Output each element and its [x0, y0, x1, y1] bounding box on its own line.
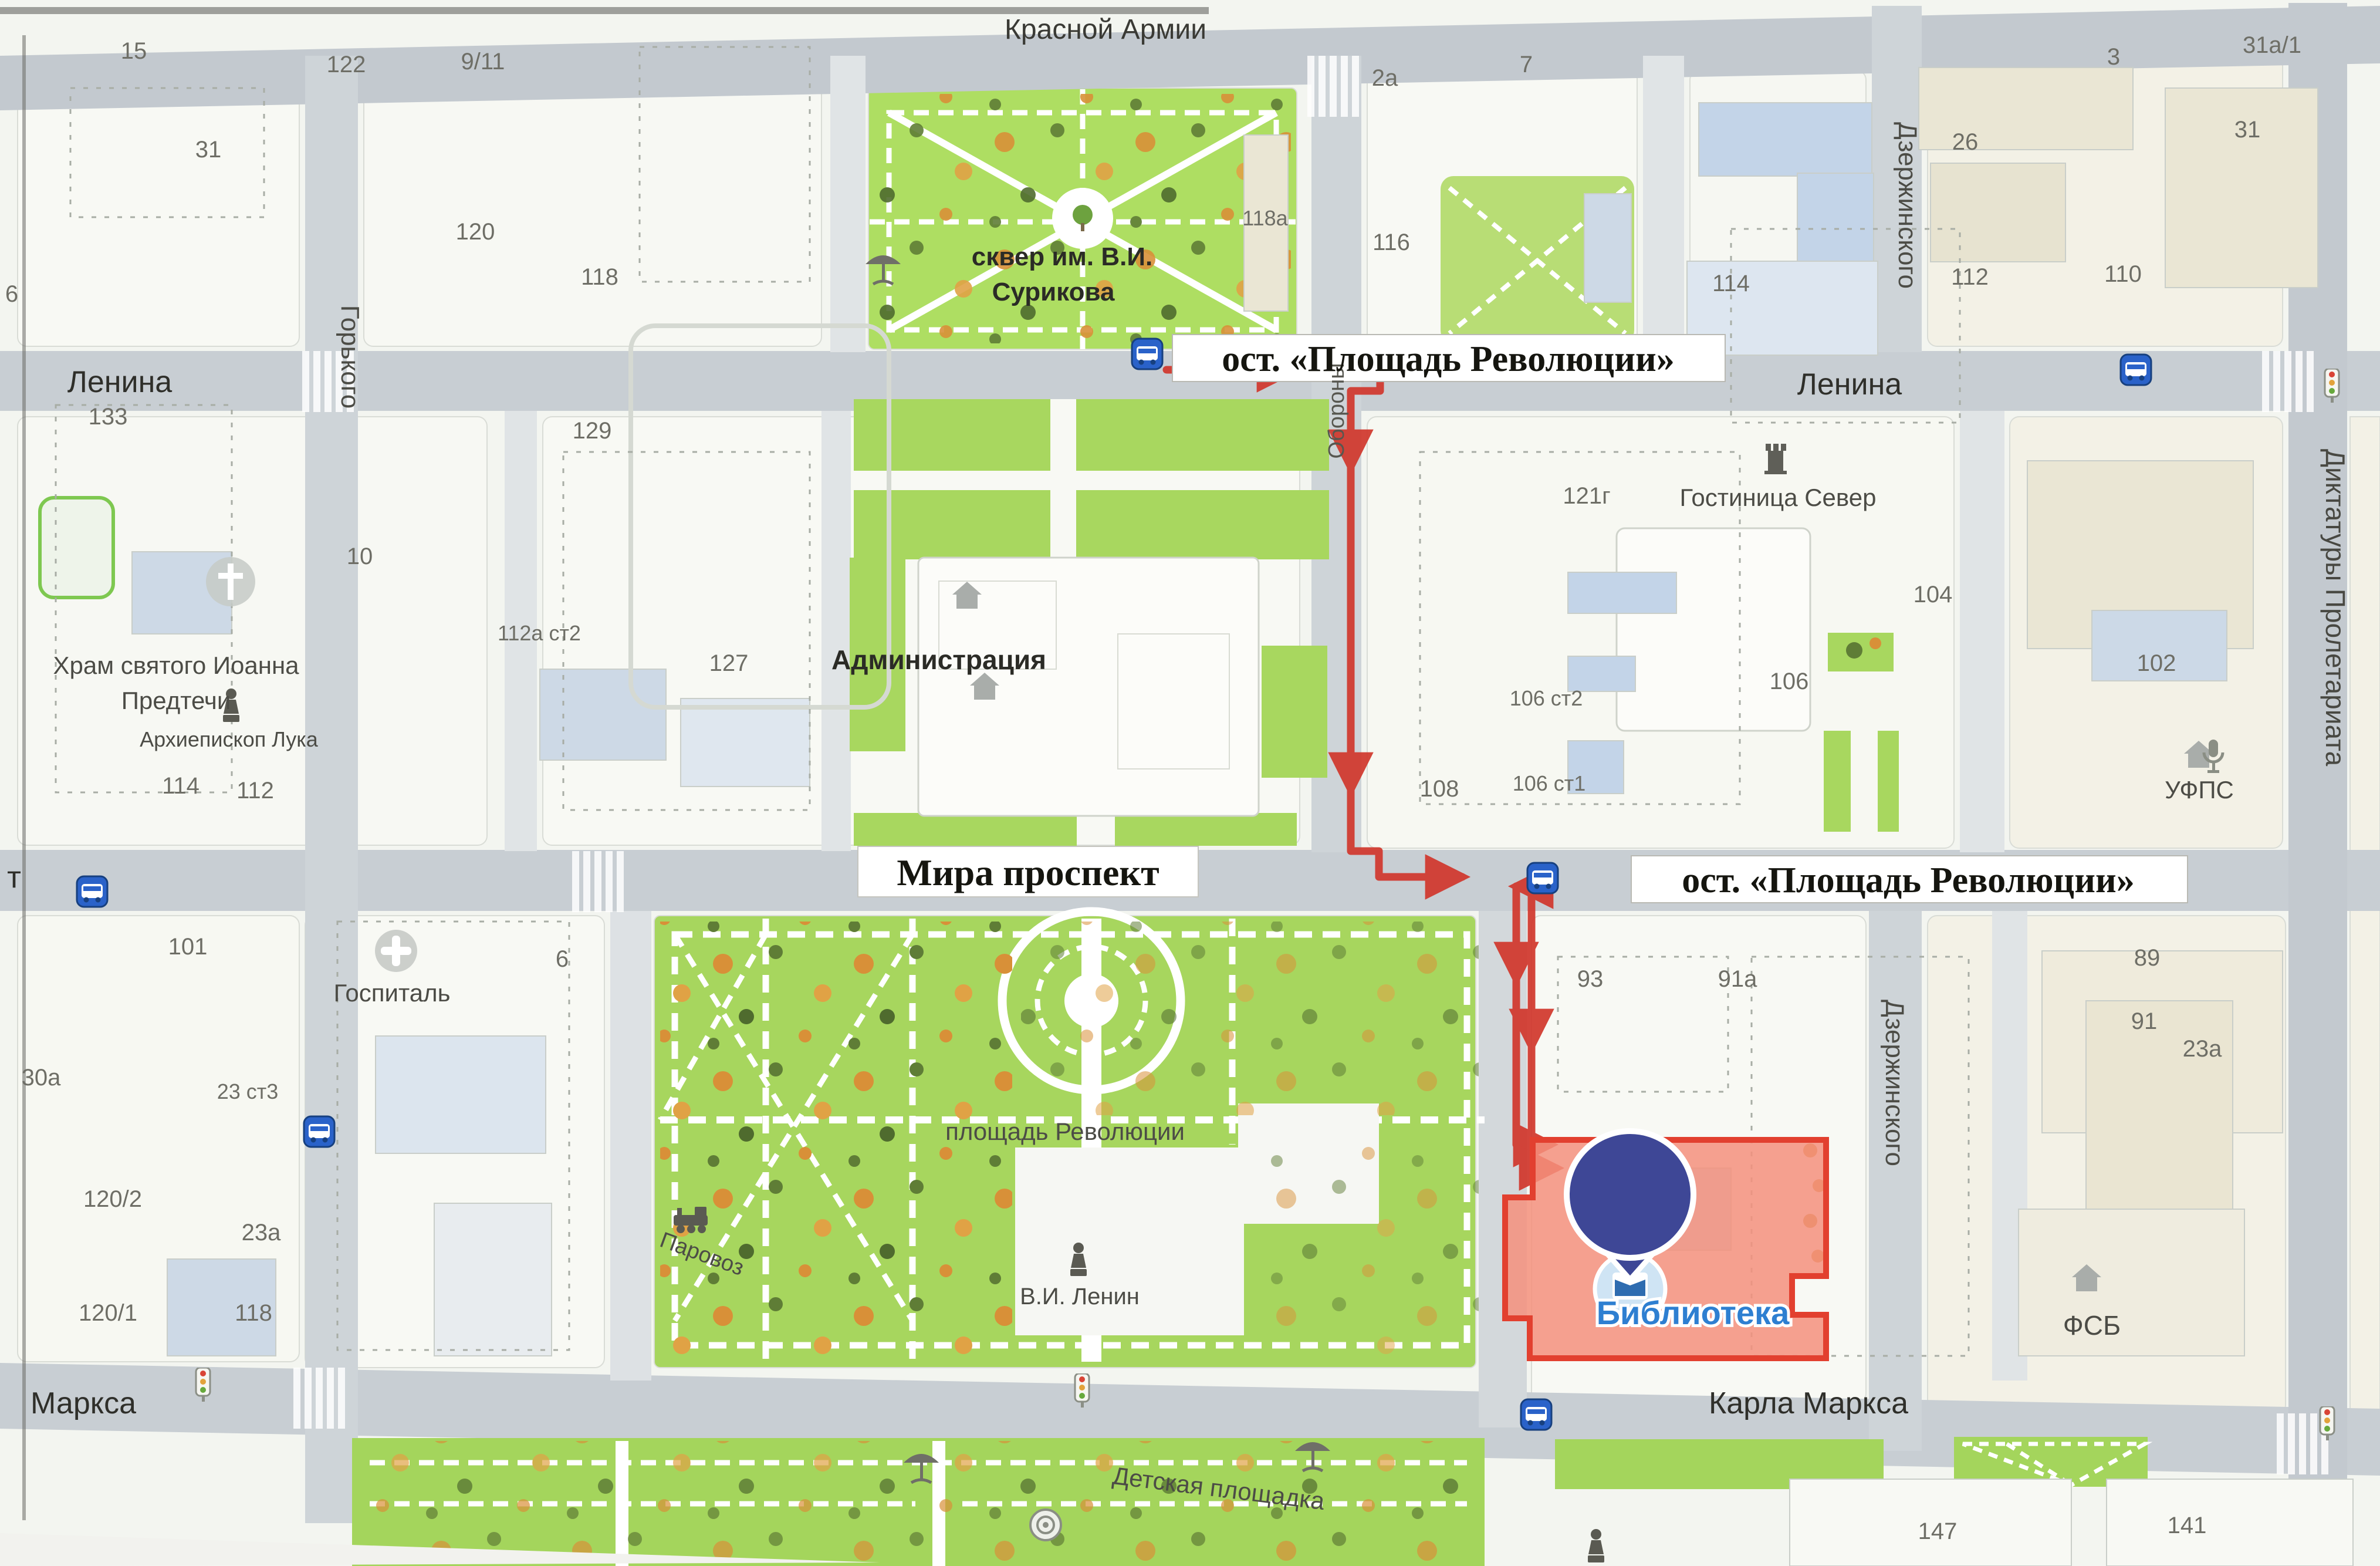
poi-luka: Архиепископ Лука — [140, 727, 319, 751]
house-number: 127 — [709, 650, 749, 676]
bus-stop-icon[interactable] — [1527, 863, 1558, 893]
tree-icon — [1064, 200, 1101, 237]
house-number: 108 — [1420, 776, 1459, 802]
hospital-cross-icon — [375, 930, 417, 972]
building — [1568, 572, 1676, 613]
house-number: 147 — [1918, 1518, 1958, 1544]
poi-skver-line2: Сурикова — [992, 278, 1115, 306]
house-number: 91а — [1718, 966, 1757, 992]
bus-stop-icon[interactable] — [304, 1116, 334, 1147]
hotel-building — [1617, 528, 1810, 731]
house-number: 106 ст1 — [1513, 771, 1586, 795]
house-number: 121г — [1563, 483, 1610, 509]
lawn-strip — [854, 490, 1329, 559]
lawn-strip — [1878, 731, 1899, 832]
lawn-strip — [1262, 646, 1327, 778]
poi-hospital: Госпиталь — [333, 979, 450, 1007]
house-number: 7 — [1520, 52, 1533, 77]
house-number: 2а — [1372, 65, 1398, 91]
house-number: 101 — [168, 934, 208, 960]
bus-stop-icon[interactable] — [77, 876, 107, 907]
street-label-marksa: Маркса — [31, 1386, 136, 1420]
street-label-diktatury: Диктатуры Пролетариата — [2320, 449, 2351, 767]
road-minor — [830, 56, 866, 352]
house-number: 141 — [2168, 1513, 2207, 1538]
bus-stop-icon[interactable] — [2121, 355, 2151, 385]
lawn-strip — [854, 399, 1329, 471]
house-number: 102 — [2137, 650, 2176, 676]
road-minor — [1960, 411, 2004, 852]
bus-stop-icon[interactable] — [1132, 339, 1162, 369]
building — [1931, 163, 2065, 262]
lawn-gap — [1050, 399, 1076, 559]
house-number: 118а — [1242, 206, 1288, 230]
house-number: 106 — [1770, 669, 1809, 694]
building — [2019, 1209, 2244, 1356]
poi-revolution-square: площадь Революции — [945, 1118, 1185, 1145]
building — [540, 669, 666, 760]
house-number: 118 — [235, 1300, 272, 1326]
poi-skver-line1: сквер им. В.И. — [972, 242, 1152, 271]
scanned-map-page: Красной Армии Ленина Ленина Горького Обо… — [0, 0, 2380, 1566]
house-number: 9/11 — [461, 49, 505, 75]
house-number: 23а — [242, 1220, 281, 1246]
road-minor — [821, 411, 851, 851]
street-label-cut: т — [7, 860, 21, 895]
house-number: 133 — [89, 404, 128, 430]
house-number: 23а — [2183, 1036, 2222, 1062]
lawn-strip — [1115, 813, 1297, 846]
stop2-label: ост. «Площадь Революции» — [1682, 860, 2134, 900]
lawn-strip — [854, 813, 1077, 846]
road-dzerzhinskogo-bottom — [1869, 911, 1922, 1451]
house-number: 31 — [195, 137, 222, 163]
house-number: 118 — [581, 264, 618, 290]
poi-church-line2: Предтечи — [121, 687, 231, 714]
building — [1919, 67, 2133, 150]
house-number: 91 — [2131, 1008, 2158, 1034]
house-number: 120 — [456, 219, 495, 245]
street-label-dzerzhinskogo-top: Дзержинского — [1893, 122, 1922, 289]
stop1-label: ост. «Площадь Революции» — [1222, 339, 1674, 379]
poi-hotel-sever: Гостиница Север — [1680, 484, 1877, 511]
house-number: 31 — [2234, 117, 2261, 143]
street-label-krasnoy-armii: Красной Армии — [1005, 14, 1206, 45]
house-number: 120/1 — [79, 1300, 137, 1326]
street-label-lenina-left: Ленина — [67, 365, 173, 399]
bus-stop-icon[interactable] — [1521, 1399, 1551, 1430]
poi-church-line1: Храм святого Иоанна — [53, 652, 299, 679]
house-number: 129 — [573, 418, 612, 444]
building — [1699, 103, 1872, 176]
house-number: 3 — [2107, 44, 2120, 70]
house-number: 31а/1 — [2243, 32, 2301, 58]
church-cross-icon — [206, 557, 255, 606]
poi-administration: Администрация — [831, 644, 1046, 675]
house-number: 112а ст2 — [498, 621, 581, 645]
house-number: 104 — [1914, 582, 1953, 607]
street-label-mira: Мира проспект — [897, 852, 1159, 893]
house-number: 93 — [1577, 966, 1604, 992]
house-number: 6 — [5, 281, 18, 307]
house-number: 10 — [347, 544, 373, 569]
map-canvas: Красной Армии Ленина Ленина Горького Обо… — [0, 0, 2380, 1566]
building — [376, 1036, 546, 1153]
house-number: 122 — [327, 52, 366, 77]
house-number: 30а — [22, 1065, 61, 1091]
road-minor — [1643, 56, 1684, 352]
house-number: 114 — [1712, 271, 1750, 296]
house-number: 116 — [1372, 230, 1410, 255]
house-number: 26 — [1952, 129, 1979, 155]
block — [2350, 417, 2380, 1415]
house-number: 106 ст2 — [1510, 686, 1583, 710]
building — [2107, 1479, 2353, 1566]
house-number: 114 — [162, 773, 200, 799]
house-number: 110 — [2104, 261, 2142, 287]
building — [434, 1203, 552, 1356]
house-number: 89 — [2134, 945, 2161, 971]
house-number: 15 — [121, 38, 147, 64]
green-outlined-lot — [40, 498, 113, 598]
block — [364, 59, 821, 346]
street-label-karla-marksa: Карла Маркса — [1709, 1386, 1908, 1420]
house-number: 120/2 — [83, 1186, 142, 1212]
lawn-strip — [1824, 731, 1851, 832]
road-minor — [610, 911, 651, 1381]
fountain-icon — [1030, 1510, 1061, 1540]
street-label-lenina-right: Ленина — [1797, 367, 1902, 401]
poi-fsb: ФСБ — [2063, 1310, 2121, 1341]
house-number: 23 ст3 — [217, 1079, 279, 1103]
building — [1584, 194, 1631, 302]
poi-lenin: В.И. Ленин — [1020, 1284, 1140, 1310]
house-number: 112 — [1951, 264, 1989, 290]
house-number: 112 — [236, 778, 274, 804]
street-label-dzerzhinskogo-bottom: Дзержинского — [1880, 1000, 1909, 1166]
poi-library: Библиотека — [1597, 1294, 1790, 1331]
road-gorkogo — [305, 56, 358, 1523]
street-label-gorkogo: Горького — [336, 305, 364, 409]
poi-ufps: УФПС — [2165, 776, 2234, 804]
house-number: 6 — [556, 946, 569, 972]
building — [681, 698, 810, 787]
